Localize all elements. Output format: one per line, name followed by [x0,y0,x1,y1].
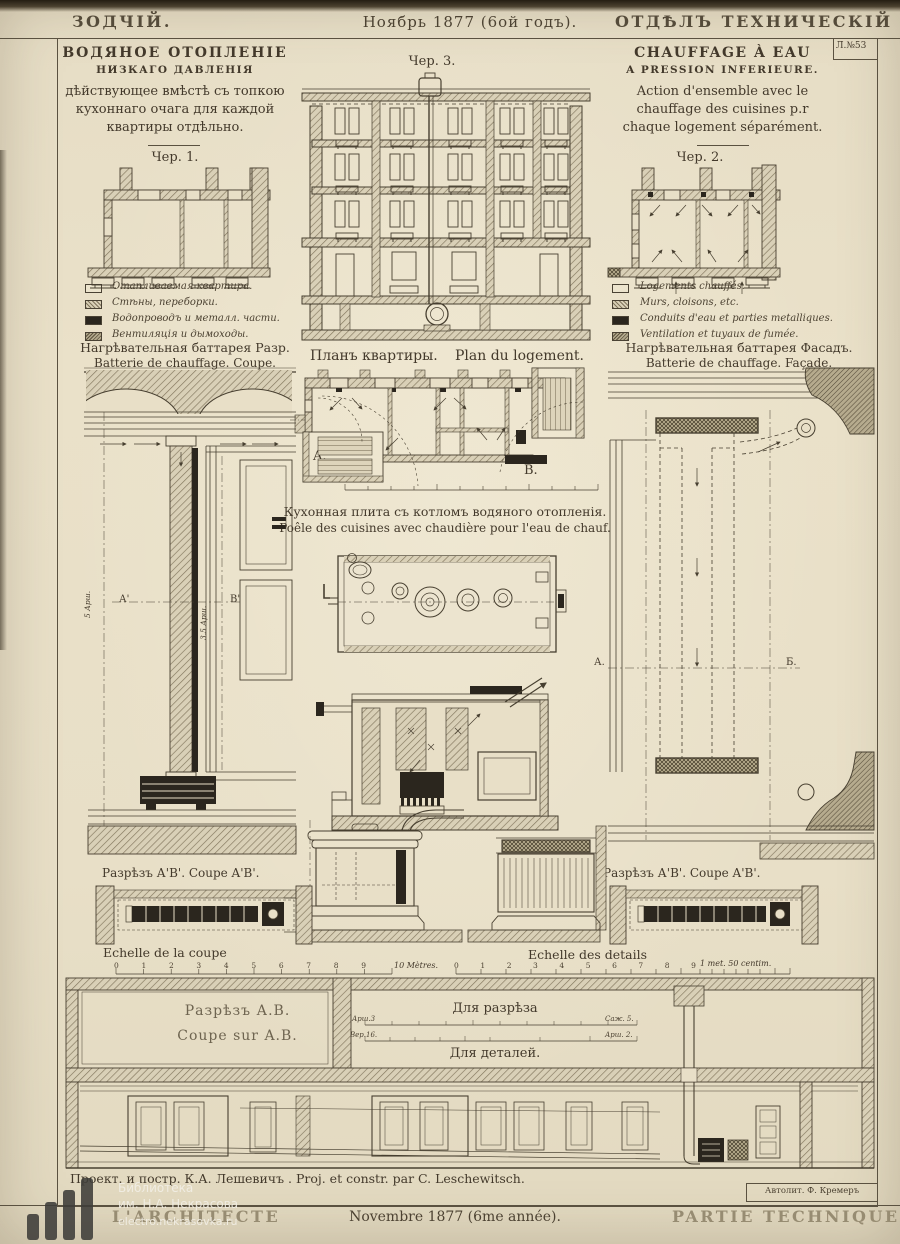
battery-facade-drawing [608,368,874,859]
plate-drawings [0,0,900,1244]
coupe-ab-small-right [610,886,818,944]
fig2-plan-fragment [608,165,780,294]
fig1-plan-fragment [88,168,270,288]
stove-section [316,678,558,830]
bottom-long-section [66,978,874,1168]
kitchen-range-plan [272,517,566,652]
scanned-plate-page: ЗОДЧІЙ. Ноябрь 1877 (6ой годъ). ОТДѢЛЪ Т… [0,0,900,1244]
detail-radiator-facade [468,826,606,942]
scale-bars [116,968,790,974]
coupe-ab-small-left [96,886,312,944]
fig3-building-section [302,73,590,340]
apartment-plan [290,368,598,490]
battery-coupe-drawing [71,368,307,854]
